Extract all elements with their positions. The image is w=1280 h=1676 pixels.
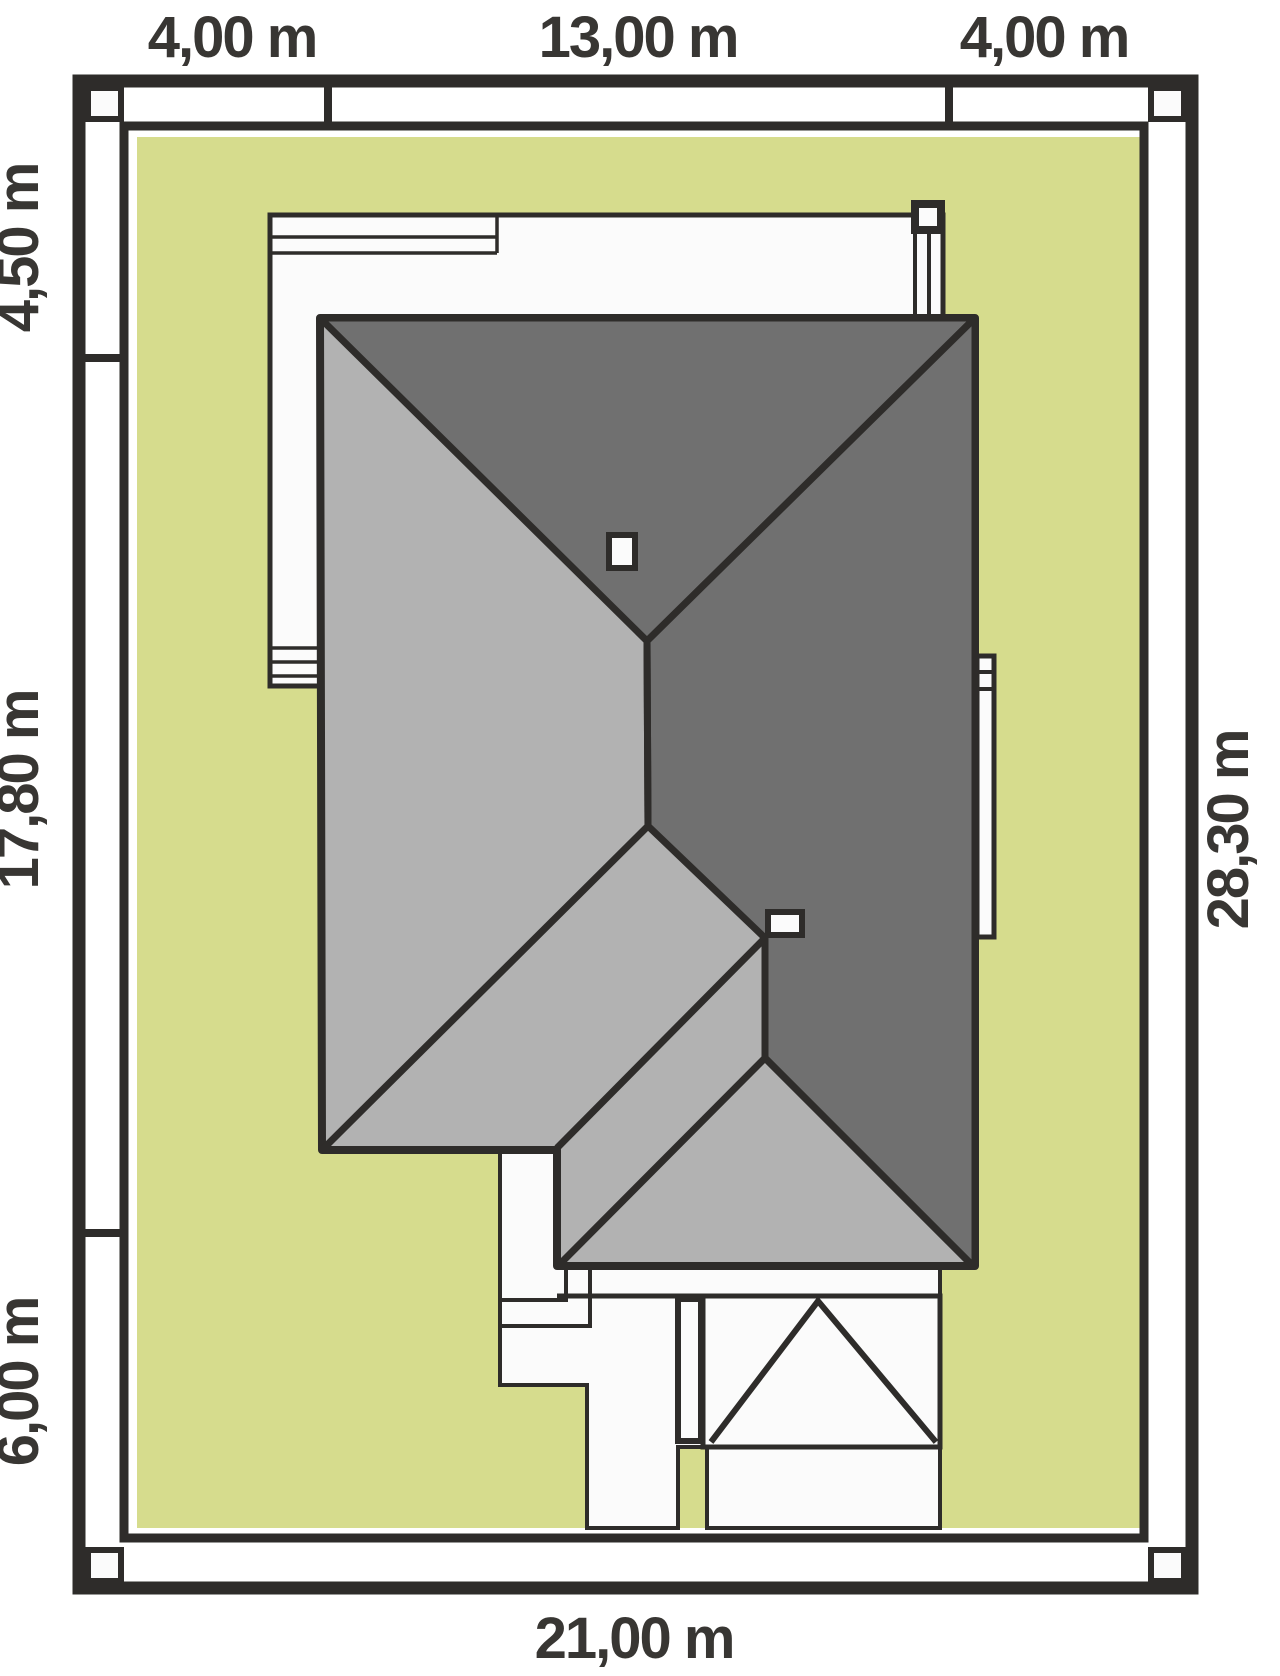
corner-marker-bottom-right: [1151, 1550, 1184, 1581]
dimension-label-top-right: 4,00 m: [960, 5, 1129, 70]
dimension-label-bottom: 21,00 m: [535, 1606, 734, 1671]
garage-pillar: [678, 1299, 701, 1441]
terrace-pillar-marker-inner: [919, 208, 937, 226]
east-edge-strip: [977, 656, 994, 937]
corner-marker-bottom-left: [88, 1550, 121, 1581]
roof-main-ridge: [647, 641, 648, 826]
chimney-east: [768, 912, 802, 935]
site-plan-drawing: 4,00 m 13,00 m 4,00 m 4,50 m 17,80 m 6,0…: [0, 0, 1280, 1676]
dimension-label-right: 28,30 m: [1196, 731, 1261, 930]
site-plan: 4,00 m 13,00 m 4,00 m 4,50 m 17,80 m 6,0…: [0, 0, 1280, 1676]
east-strip-outline: [977, 656, 994, 937]
dimension-label-left-upper: 4,50 m: [0, 164, 51, 333]
corner-marker-top-right: [1151, 88, 1184, 119]
dimension-label-left-lower: 6,00 m: [0, 1298, 51, 1467]
garage-door-outline: [703, 1296, 940, 1447]
house-roof: [320, 318, 975, 1267]
chimney-north: [609, 535, 635, 568]
dimension-label-top-center: 13,00 m: [539, 5, 738, 70]
garage-door: [703, 1296, 940, 1447]
dimension-label-top-left: 4,00 m: [148, 5, 317, 70]
dimension-label-left-middle: 17,80 m: [0, 691, 51, 890]
corner-marker-top-left: [88, 88, 121, 119]
